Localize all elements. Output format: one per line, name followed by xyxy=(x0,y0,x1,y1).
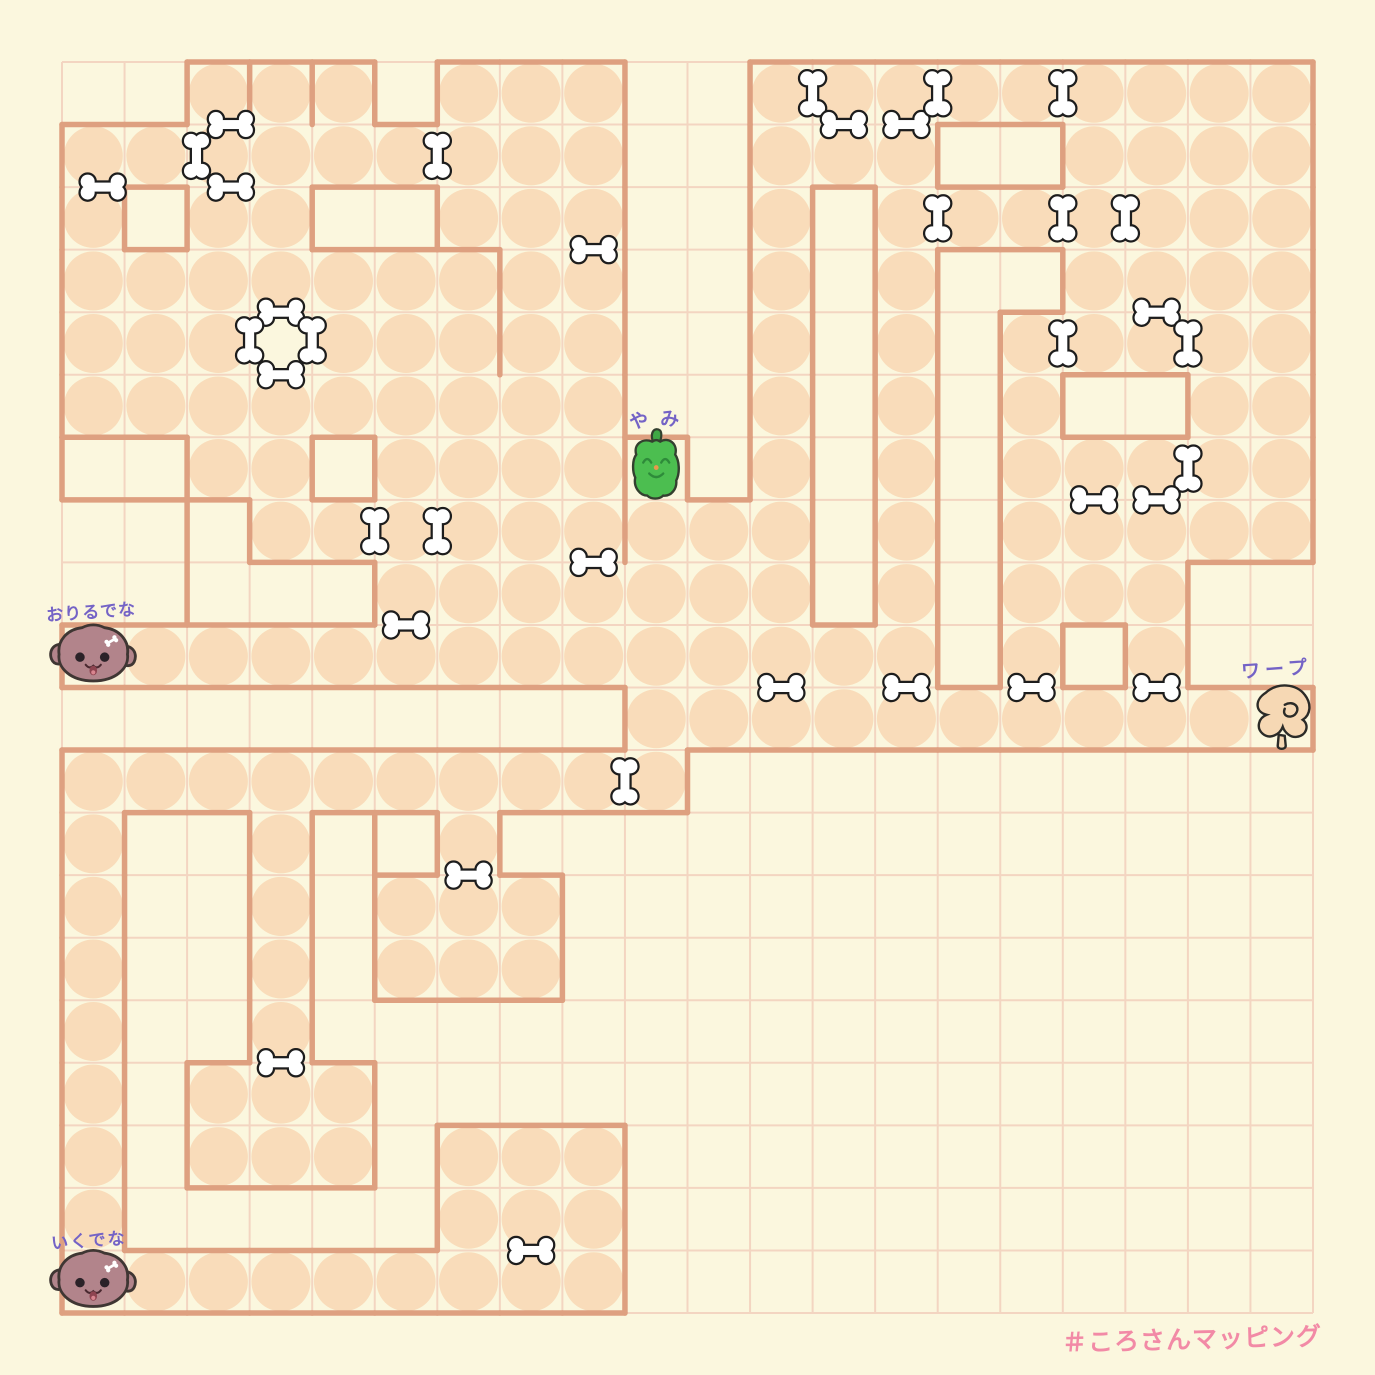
explored-cell-circle xyxy=(502,752,561,811)
explored-cell-circle xyxy=(189,1065,248,1124)
explored-cell-circle xyxy=(189,251,248,310)
explored-cell-circle xyxy=(439,377,498,436)
pepper-nose xyxy=(654,465,659,470)
explored-cell-circle xyxy=(1190,126,1249,185)
dog-eye-right xyxy=(100,652,110,662)
explored-cell-circle xyxy=(251,752,310,811)
dog-tongue xyxy=(91,1296,95,1300)
explored-cell-circle xyxy=(189,377,248,436)
explored-cell-circle xyxy=(564,1190,623,1249)
dog-eye-left xyxy=(75,652,85,662)
explored-cell-circle xyxy=(564,439,623,498)
dog-eye-right xyxy=(100,1278,110,1288)
explored-cell-circle xyxy=(439,314,498,373)
explored-cell-circle xyxy=(377,251,436,310)
explored-cell-circle xyxy=(439,251,498,310)
explored-cell-circle xyxy=(564,64,623,123)
explored-cell-circle xyxy=(126,377,185,436)
explored-cell-circle xyxy=(314,1252,373,1311)
explored-cell-circle xyxy=(564,377,623,436)
explored-cell-circle xyxy=(752,377,811,436)
explored-cell-circle xyxy=(502,314,561,373)
explored-cell-circle xyxy=(251,439,310,498)
explored-cell-circle xyxy=(251,1252,310,1311)
explored-cell-circle xyxy=(1127,126,1186,185)
explored-cell-circle xyxy=(752,314,811,373)
explored-cell-circle xyxy=(1065,564,1124,623)
explored-cell-circle xyxy=(189,627,248,686)
explored-cell-circle xyxy=(877,377,936,436)
explored-cell-circle xyxy=(1252,377,1311,436)
explored-cell-circle xyxy=(251,814,310,873)
explored-cell-circle xyxy=(64,939,123,998)
explored-cell-circle xyxy=(377,752,436,811)
explored-cell-circle xyxy=(1252,64,1311,123)
explored-cell-circle xyxy=(689,627,748,686)
explored-cell-circle xyxy=(439,1252,498,1311)
explored-cell-circle xyxy=(377,439,436,498)
explored-cell-circle xyxy=(314,1127,373,1186)
explored-cell-circle xyxy=(502,126,561,185)
explored-cell-circle xyxy=(314,752,373,811)
explored-cell-circle xyxy=(877,251,936,310)
explored-cell-circle xyxy=(502,251,561,310)
explored-cell-circle xyxy=(939,689,998,748)
explored-cell-circle xyxy=(251,189,310,248)
explored-cell-circle xyxy=(439,1190,498,1249)
explored-cell-circle xyxy=(1002,564,1061,623)
explored-cell-circle xyxy=(752,564,811,623)
explored-cell-circle xyxy=(314,377,373,436)
explored-cell-circle xyxy=(439,1127,498,1186)
explored-cell-circle xyxy=(439,627,498,686)
explored-cell-circle xyxy=(502,189,561,248)
explored-cell-circle xyxy=(126,251,185,310)
explored-cell-circle xyxy=(439,439,498,498)
explored-cell-circle xyxy=(814,627,873,686)
explored-cell-circle xyxy=(189,1127,248,1186)
explored-cell-circle xyxy=(251,877,310,936)
explored-cell-circle xyxy=(251,627,310,686)
explored-cell-circle xyxy=(1252,314,1311,373)
pepper-label: やみ xyxy=(628,403,692,434)
explored-cell-circle xyxy=(1252,189,1311,248)
explored-cell-circle xyxy=(627,502,686,561)
explored-cell-circle xyxy=(752,126,811,185)
explored-cell-circle xyxy=(126,752,185,811)
explored-cell-circle xyxy=(1190,377,1249,436)
explored-cell-circle xyxy=(251,1127,310,1186)
explored-cell-circle xyxy=(439,752,498,811)
explored-cell-circle xyxy=(1190,251,1249,310)
explored-cell-circle xyxy=(502,877,561,936)
explored-cell-circle xyxy=(1127,564,1186,623)
explored-cell-circle xyxy=(314,1065,373,1124)
explored-cell-circle xyxy=(377,939,436,998)
explored-cell-circle xyxy=(627,627,686,686)
explored-cell-circle xyxy=(1127,64,1186,123)
explored-cell-circle xyxy=(439,189,498,248)
explored-cell-circle xyxy=(439,564,498,623)
explored-cell-circle xyxy=(377,877,436,936)
explored-cell-circle xyxy=(502,939,561,998)
explored-cell-circle xyxy=(64,1002,123,1061)
explored-cell-circle xyxy=(314,126,373,185)
explored-cell-circle xyxy=(439,64,498,123)
explored-cell-circle xyxy=(502,377,561,436)
dog-bottom-label: いくでな xyxy=(50,1224,127,1254)
explored-cell-circle xyxy=(752,251,811,310)
explored-cell-circle xyxy=(64,377,123,436)
explored-cell-circle xyxy=(314,627,373,686)
explored-cell-circle xyxy=(126,314,185,373)
explored-cell-circle xyxy=(189,439,248,498)
explored-cell-circle xyxy=(502,502,561,561)
explored-cell-circle xyxy=(64,752,123,811)
explored-cell-circle xyxy=(877,564,936,623)
explored-cell-circle xyxy=(1065,689,1124,748)
explored-cell-circle xyxy=(1190,64,1249,123)
explored-cell-circle xyxy=(377,377,436,436)
explored-cell-circle xyxy=(814,689,873,748)
dog-tongue xyxy=(91,670,95,674)
explored-cell-circle xyxy=(189,752,248,811)
warp-label: ワープ xyxy=(1240,652,1313,684)
map-canvas: やみ おりるでな ワープ いくでな ＃ころさんマッピング xyxy=(0,0,1375,1375)
explored-cell-circle xyxy=(314,251,373,310)
dog-eye-left xyxy=(75,1278,85,1288)
explored-cell-circle xyxy=(377,314,436,373)
explored-cell-circle xyxy=(1190,689,1249,748)
explored-cell-circle xyxy=(1190,502,1249,561)
explored-cell-circle xyxy=(877,439,936,498)
explored-cell-circle xyxy=(502,564,561,623)
explored-cell-circle xyxy=(1002,377,1061,436)
explored-cell-circle xyxy=(251,64,310,123)
explored-cell-circle xyxy=(689,502,748,561)
explored-cell-circle xyxy=(64,1127,123,1186)
explored-cell-circle xyxy=(1252,502,1311,561)
explored-cell-circle xyxy=(64,314,123,373)
explored-cell-circle xyxy=(1065,126,1124,185)
explored-cell-circle xyxy=(564,1127,623,1186)
explored-cell-circle xyxy=(251,126,310,185)
maze-map-svg xyxy=(0,0,1375,1375)
explored-cell-circle xyxy=(502,439,561,498)
explored-cell-circle xyxy=(64,877,123,936)
explored-cell-circle xyxy=(1252,439,1311,498)
explored-cell-circle xyxy=(126,126,185,185)
explored-cell-circle xyxy=(752,439,811,498)
explored-cell-circle xyxy=(502,64,561,123)
explored-cell-circle xyxy=(439,939,498,998)
explored-cell-circle xyxy=(1065,251,1124,310)
explored-cell-circle xyxy=(564,627,623,686)
explored-cell-circle xyxy=(689,564,748,623)
explored-cell-circle xyxy=(752,189,811,248)
explored-cell-circle xyxy=(502,627,561,686)
explored-cell-circle xyxy=(1252,126,1311,185)
explored-cell-circle xyxy=(189,1252,248,1311)
explored-cell-circle xyxy=(627,689,686,748)
warp-foot xyxy=(1278,735,1286,749)
explored-cell-circle xyxy=(64,814,123,873)
explored-cell-circle xyxy=(564,126,623,185)
explored-cell-circle xyxy=(564,1252,623,1311)
explored-cell-circle xyxy=(251,502,310,561)
explored-cell-circle xyxy=(627,564,686,623)
explored-cell-circle xyxy=(314,64,373,123)
explored-cell-circle xyxy=(64,1065,123,1124)
explored-cell-circle xyxy=(564,314,623,373)
explored-cell-circle xyxy=(1002,502,1061,561)
explored-cell-circle xyxy=(752,502,811,561)
signature-text: ＃ころさんマッピング xyxy=(1062,1317,1323,1360)
explored-cell-circle xyxy=(1002,439,1061,498)
explored-cell-circle xyxy=(689,689,748,748)
explored-cell-circle xyxy=(1190,189,1249,248)
explored-cell-circle xyxy=(377,1252,436,1311)
explored-cell-circle xyxy=(1252,251,1311,310)
explored-cell-circle xyxy=(877,314,936,373)
explored-cell-circle xyxy=(502,1127,561,1186)
explored-cell-circle xyxy=(877,502,936,561)
explored-cell-circle xyxy=(251,939,310,998)
explored-cell-circle xyxy=(64,251,123,310)
